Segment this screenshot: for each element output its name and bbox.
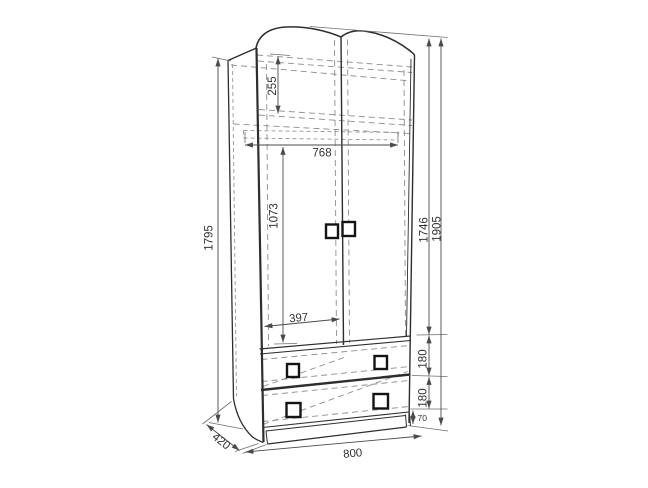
dim-label-depth: 420: [210, 431, 232, 452]
right-door-handle: [343, 222, 356, 236]
side-panel-back-edge: [228, 61, 234, 400]
wardrobe-technical-drawing: 1795 255 768 1073 397: [0, 0, 648, 488]
left-door-crown: [256, 27, 341, 48]
dim-label-interior-width: 768: [312, 148, 331, 160]
left-door-handle: [326, 225, 338, 239]
dimension-door-half-width: 397: [265, 312, 340, 327]
upper-drawer-right-handle: [375, 356, 388, 369]
upper-drawer-left-handle: [287, 364, 299, 377]
dimension-side-panel-height: 1795: [204, 57, 244, 429]
drawing-canvas: 1795 255 768 1073 397: [0, 0, 648, 488]
dim-label-overall-width: 800: [343, 447, 363, 461]
dim-label-door-half-width: 397: [289, 312, 309, 326]
dimension-lower-drawer-height: 180: [418, 377, 430, 409]
lower-drawer-left-handle: [287, 403, 301, 417]
dimension-overall-height: 1905: [432, 39, 444, 426]
dim-label-top-section-height: 255: [267, 76, 279, 95]
door-split-line: [341, 37, 344, 345]
right-door-crown: [341, 31, 415, 55]
dimension-interior-width: 768: [245, 132, 398, 160]
dim-label-upper-drawer-height: 180: [418, 349, 430, 368]
dim-label-door-height: 1746: [419, 217, 431, 243]
dimension-door-height: 1746: [419, 39, 431, 335]
dim-label-plinth-height: 70: [418, 413, 428, 423]
dim-label-lower-drawer-height: 180: [418, 388, 430, 407]
plinth-bottom: [268, 427, 407, 444]
dim-label-hanging-section-height: 1073: [269, 203, 281, 229]
dimension-overall-width: 800: [243, 436, 422, 461]
dimension-plinth-height: 70: [413, 411, 427, 425]
dim-label-overall-height: 1905: [432, 216, 444, 242]
side-panel-top-edge: [228, 48, 257, 61]
lower-drawer-right-handle: [374, 394, 389, 409]
side-panel-bottom-edge: [234, 399, 264, 443]
dim-label-side-panel-height: 1795: [204, 225, 216, 251]
dimension-upper-drawer-height: 180: [418, 336, 430, 376]
cabinet-outline: [228, 27, 415, 444]
front-left-edge: [257, 48, 264, 442]
